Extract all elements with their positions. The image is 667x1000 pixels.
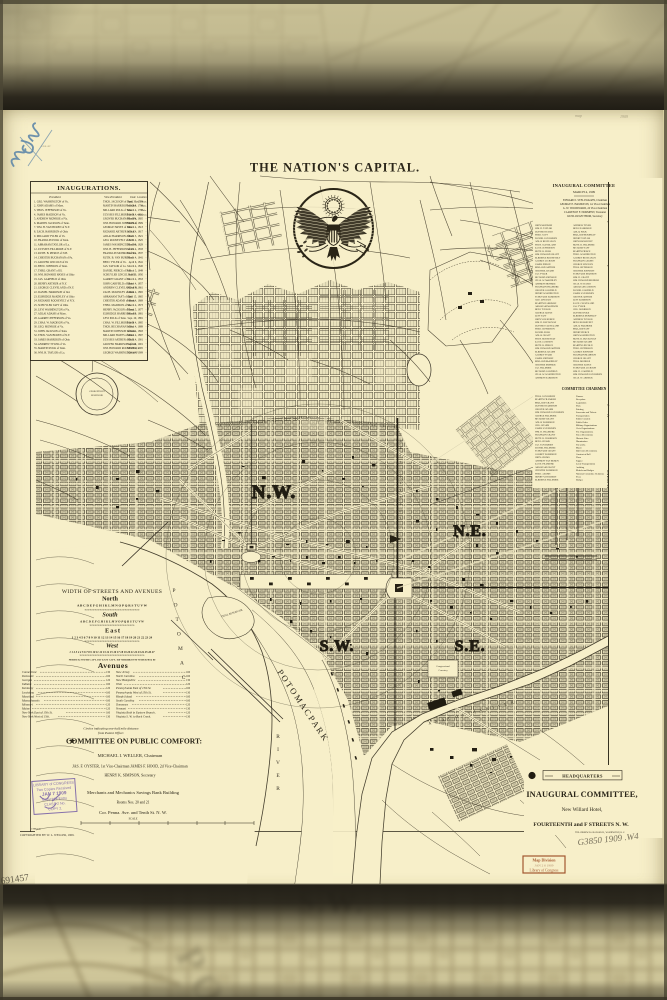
svg-text:S.W.: S.W. <box>298 886 365 919</box>
